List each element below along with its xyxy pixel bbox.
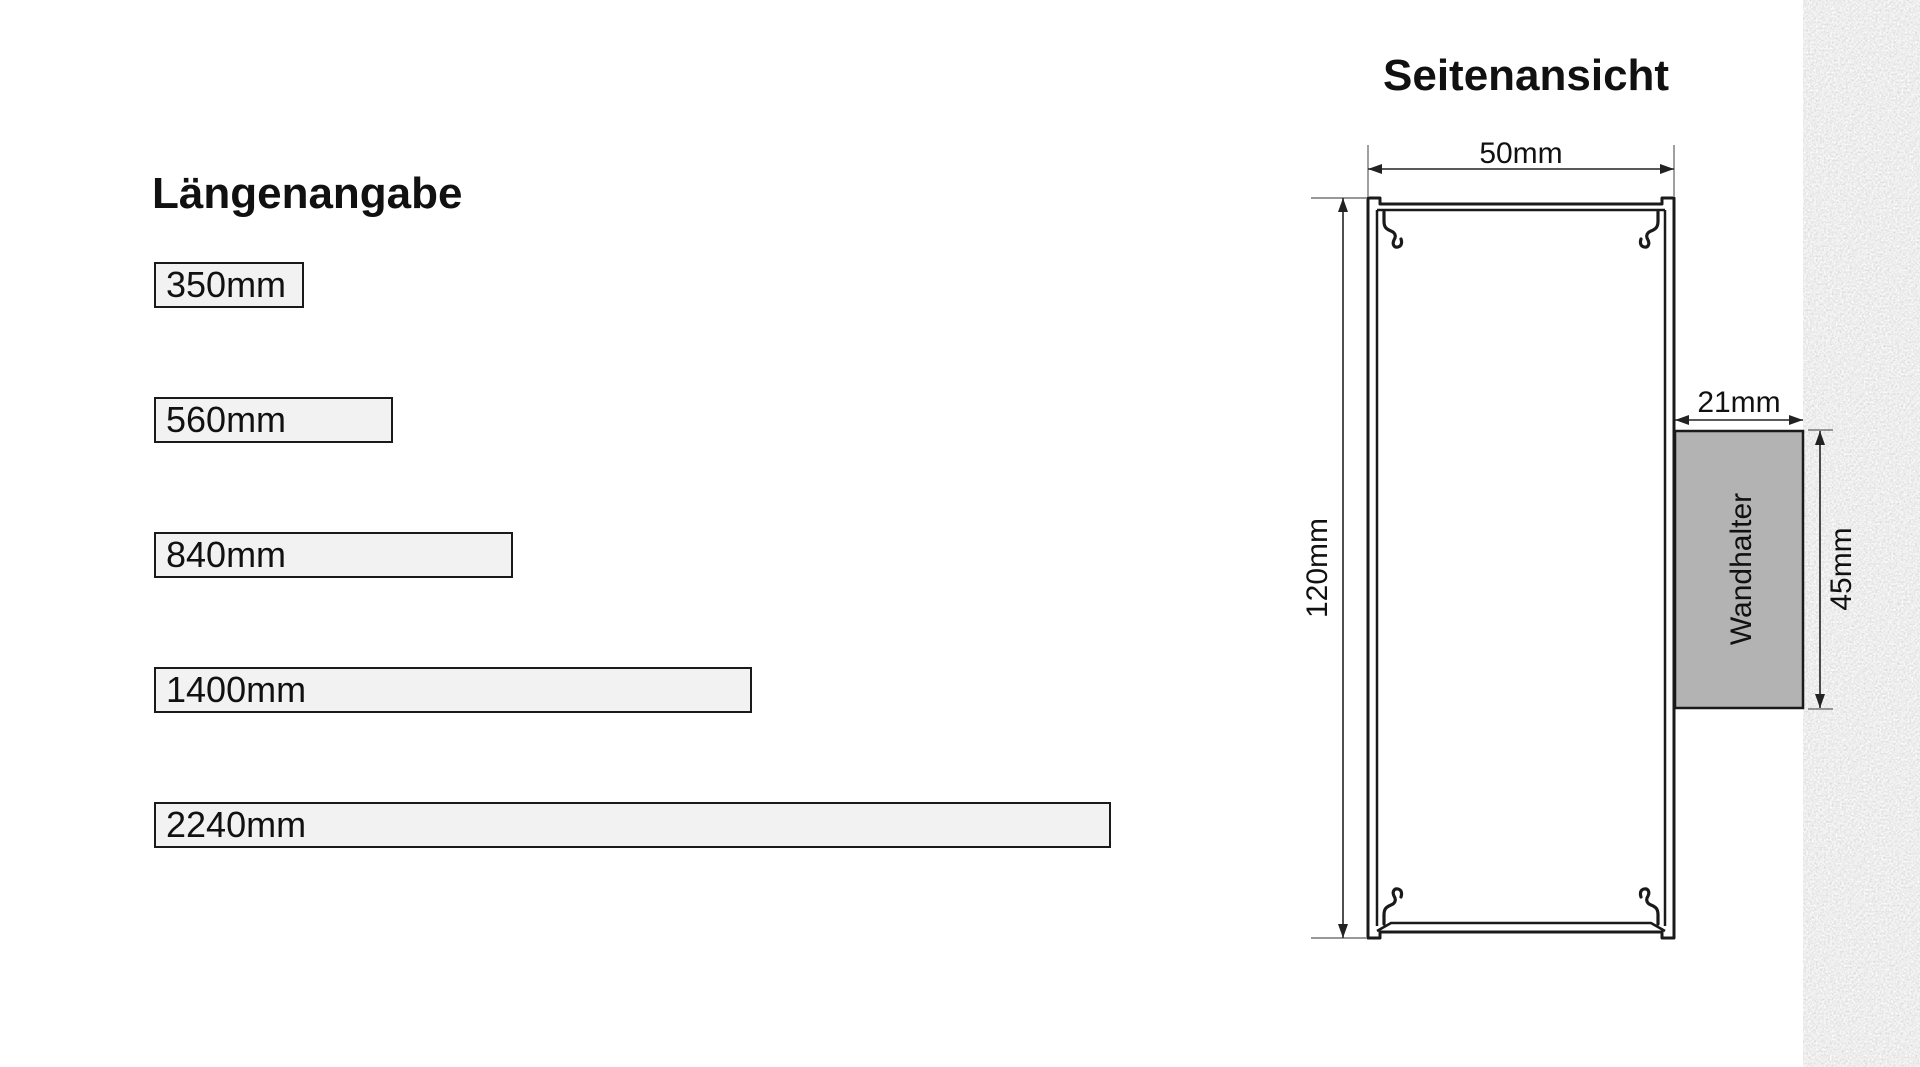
length-bar-label: 840mm bbox=[156, 537, 286, 573]
length-bar-label: 1400mm bbox=[156, 672, 306, 708]
wall-holder-box bbox=[1675, 431, 1803, 708]
wall-holder-label: Wandhalter bbox=[1725, 493, 1758, 645]
length-bar: 350mm bbox=[154, 262, 304, 308]
wall-texture bbox=[1803, 0, 1920, 1067]
corner-clip-icon bbox=[1640, 212, 1658, 247]
side-view-title: Seitenansicht bbox=[1383, 54, 1669, 98]
length-bar: 1400mm bbox=[154, 667, 752, 713]
corner-clip-icon bbox=[1384, 212, 1402, 247]
profile-outline bbox=[1368, 198, 1674, 938]
corner-clip-icon bbox=[1640, 889, 1658, 924]
length-bar-label: 350mm bbox=[156, 267, 286, 303]
page-root: Längenangabe 350mm 560mm 840mm 1400mm 22… bbox=[0, 0, 1920, 1067]
length-bar-label: 2240mm bbox=[156, 807, 306, 843]
length-bar: 560mm bbox=[154, 397, 393, 443]
profile-inner-bottom-line bbox=[1377, 923, 1665, 931]
length-bar-label: 560mm bbox=[156, 402, 286, 438]
dim-holder-height-label: 45mm bbox=[1825, 527, 1858, 610]
dim-width-label: 50mm bbox=[1479, 137, 1562, 170]
length-bar: 840mm bbox=[154, 532, 513, 578]
corner-clip-icon bbox=[1384, 889, 1402, 924]
length-bar: 2240mm bbox=[154, 802, 1111, 848]
dim-holder-width-label: 21mm bbox=[1697, 386, 1780, 419]
lengths-panel-title: Längenangabe bbox=[152, 172, 463, 216]
dim-height-label: 120mm bbox=[1301, 518, 1334, 618]
